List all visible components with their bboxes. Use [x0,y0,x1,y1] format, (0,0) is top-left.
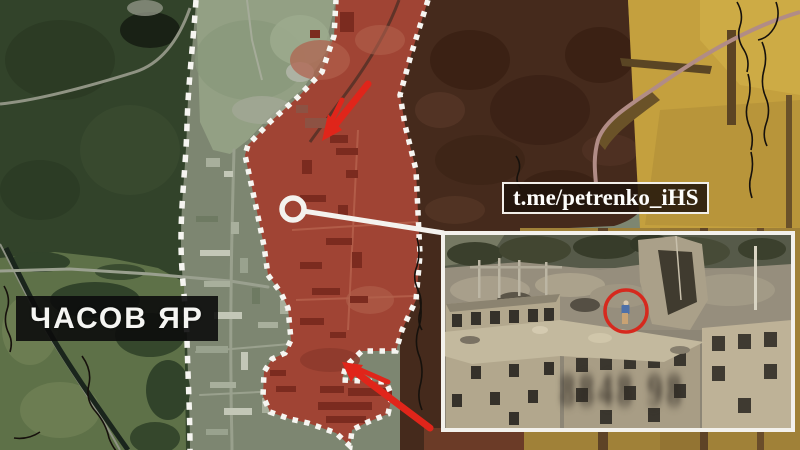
blurred-stamp: 8848 98 [560,366,700,417]
place-name-text: ЧАСОВ ЯР [30,302,204,335]
place-name-label: ЧАСОВ ЯР [16,296,218,341]
soldier-figure [623,300,628,305]
bare-tree [754,246,757,310]
ruined-block-left [446,294,560,429]
annotated-satellite-map: ЧАСОВ ЯР t.me/petrenko_iHS 8848 98 const… [0,0,800,450]
channel-watermark-text: t.me/petrenko_iHS [513,185,698,210]
channel-watermark-label: t.me/petrenko_iHS [502,182,709,214]
